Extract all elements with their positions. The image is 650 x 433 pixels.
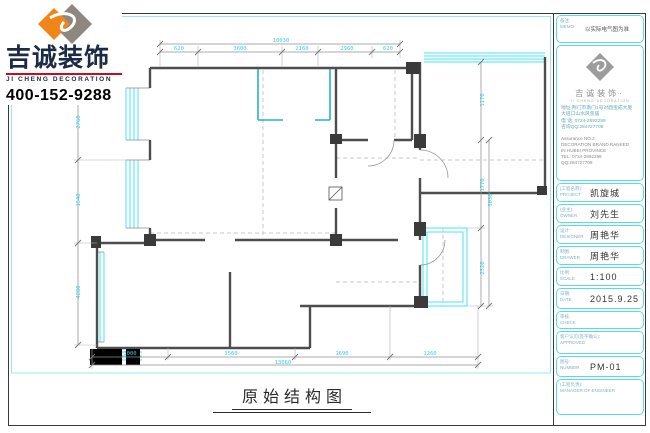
field-value: PM-01 — [590, 362, 622, 372]
title-block-panel: 备注: MEMO 以实际电气图为准 吉诚装饰· JI CHENG DECORAT… — [556, 15, 644, 415]
company-qq: 咨询QQ:284727708 — [557, 125, 643, 131]
sheet-title: 原始结构图 — [213, 383, 371, 413]
dimension-label: 3600 — [233, 46, 246, 52]
field-label: 制图:DRAWER — [560, 249, 580, 261]
field-box-drawer: 制图:DRAWER周艳华 — [556, 246, 644, 265]
field-box-check: 审核:CHECK — [556, 311, 644, 329]
field-box-date: 日期:DATE2015.9.25 — [556, 288, 644, 309]
dimension-label: 2320 — [480, 261, 486, 274]
brand-name-en: JI CHENG DECORATION — [6, 76, 122, 83]
field-label: (工程负责):MANAGER OF ENGINEER — [560, 382, 615, 394]
field-label: 审核:CHECK — [560, 314, 576, 326]
brand-name: 吉诚装饰 — [6, 46, 122, 71]
dimension-label: 4280 — [76, 285, 82, 298]
floor-plan — [90, 53, 547, 365]
field-label: 比例:SCALE — [560, 270, 575, 282]
field-box-owner: (业主):OWNER刘先生 — [556, 204, 644, 223]
dimension-label: 2760 — [76, 115, 82, 128]
columns — [91, 62, 547, 308]
door-arcs — [368, 140, 448, 265]
field-label: (工程名称):PROJECT — [560, 186, 582, 198]
window-lines — [93, 53, 545, 360]
brand-rule — [6, 73, 122, 75]
window-caps — [97, 88, 150, 342]
field-label: (业主):OWNER — [560, 207, 577, 219]
field-value: 凯旋城 — [590, 186, 620, 199]
field-value: 刘先生 — [590, 207, 620, 220]
field-box-designer: 设计:DESIGNER周艳华 — [556, 225, 644, 244]
dimension-label: 2960 — [340, 46, 353, 52]
field-box-scale: 比例:SCALE1:100 — [556, 267, 644, 286]
dimension-label: 13660 — [275, 360, 292, 366]
brand-block: 吉诚装饰 JI CHENG DECORATION 400-152-9288 — [6, 2, 122, 105]
company-qq-en: QQ:284727708 — [557, 160, 643, 166]
field-box-project: (工程名称):PROJECT凯旋城 — [556, 183, 644, 202]
memo-value: 以实际电气图为准 — [585, 25, 629, 33]
company-tagline: JI CHENG DECORATION — [557, 99, 643, 103]
dimension-label: 1690 — [335, 351, 348, 357]
dimension-label: 620 — [383, 46, 393, 52]
sheet-title-text: 原始结构图 — [232, 383, 352, 410]
company-logo-icon — [585, 52, 615, 82]
dimension-label: 1170 — [480, 93, 486, 106]
field-box-manager-of-engineer: (工程负责):MANAGER OF ENGINEER — [556, 379, 644, 415]
brand-phone: 400-152-9288 — [6, 87, 122, 105]
structural-walls — [97, 57, 545, 348]
kitchen-walls — [258, 68, 330, 120]
dimension-label: 10030 — [273, 38, 290, 44]
field-value: 1:100 — [590, 272, 618, 282]
flue-symbol — [329, 187, 342, 200]
memo-box: 备注: MEMO 以实际电气图为准 — [556, 15, 644, 43]
field-value: 2015.9.25 — [590, 294, 639, 304]
field-label: 日期:DATE — [560, 291, 572, 303]
brand-logo-icon — [24, 2, 100, 46]
dimension-label: 1000 — [123, 351, 136, 357]
field-value: 周艳华 — [590, 249, 620, 262]
company-box: 吉诚装饰· JI CHENG DECORATION 地址:荆门市南门1号对面宝成… — [556, 45, 644, 181]
dimension-label: 620 — [174, 46, 184, 52]
sheet-title-underline — [213, 412, 371, 413]
field-value: 周艳华 — [590, 228, 620, 241]
dimension-label: 1260 — [423, 351, 436, 357]
dimension-label: 3560 — [224, 351, 237, 357]
dimension-labels: 1003062036002160296062013660100035601690… — [76, 38, 494, 366]
balcony-outline-outer — [423, 228, 467, 306]
field-box-number: 图号:NUMBERPM-01 — [556, 356, 644, 377]
memo-label: 备注: MEMO — [560, 18, 574, 30]
field-label: 客户认可(签字确认):APPROVED — [560, 334, 600, 346]
dimension-label: 3030 — [488, 193, 494, 206]
dimension-label: 1540 — [76, 193, 82, 206]
company-name: 吉诚装饰· — [557, 88, 643, 99]
field-label: 设计:DESIGNER — [560, 228, 584, 240]
field-box-approved: 客户认可(签字确认):APPROVED — [556, 331, 644, 354]
dimension-label: 1770 — [480, 178, 486, 191]
dimension-label: 2160 — [295, 46, 308, 52]
field-label: 图号:NUMBER — [560, 359, 580, 371]
